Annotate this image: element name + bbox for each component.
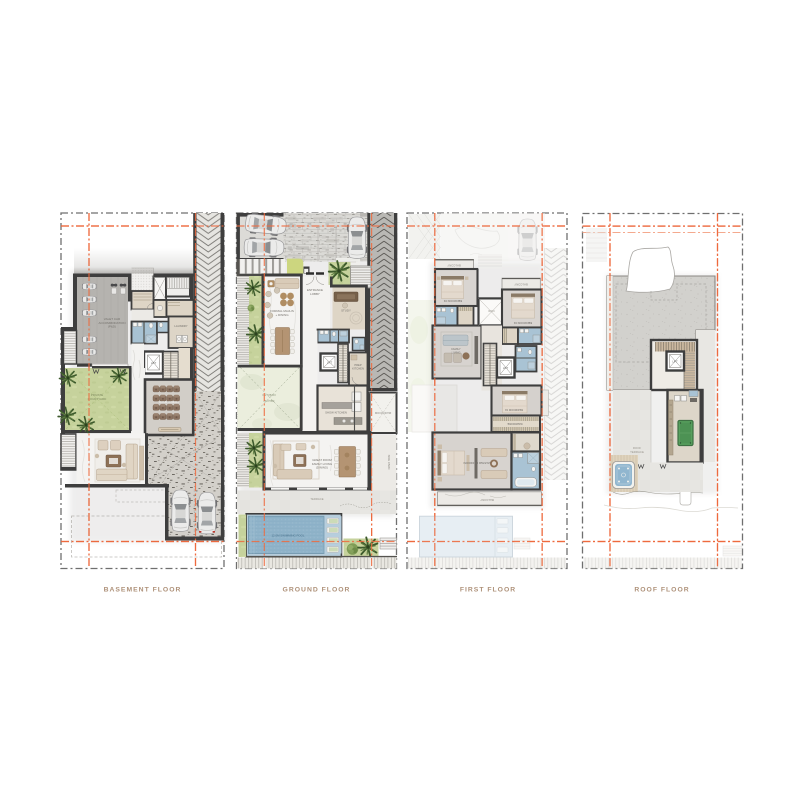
svg-text:(DINING): (DINING) [316, 466, 328, 470]
svg-text:LIFT: LIFT [327, 361, 333, 365]
svg-text:STUDY: STUDY [341, 309, 351, 313]
svg-text:SHOW KITCHEN: SHOW KITCHEN [325, 411, 347, 415]
svg-text:PREP: PREP [354, 363, 362, 367]
svg-text:COURTYARD: COURTYARD [88, 397, 108, 401]
svg-text:BALCONY: BALCONY [514, 282, 528, 286]
svg-text:BEDROOM 02: BEDROOM 02 [513, 321, 532, 325]
svg-text:MAID ROOM: MAID ROOM [374, 411, 391, 415]
svg-text:TERRACE: TERRACE [630, 450, 644, 454]
svg-text:FIRST FLOOR: FIRST FLOOR [460, 587, 516, 594]
svg-text:HOME CINEMA: HOME CINEMA [159, 400, 179, 404]
svg-text:12.0M SWIMMING POOL: 12.0M SWIMMING POOL [271, 534, 304, 538]
svg-text:(P&D): (P&D) [108, 325, 116, 329]
svg-text:GROUND FLOOR: GROUND FLOOR [283, 587, 351, 594]
svg-text:BEDROOM 04: BEDROOM 04 [505, 408, 523, 412]
svg-text:SIDE YARD: SIDE YARD [387, 455, 391, 470]
svg-text:ROOF FLOOR: ROOF FLOOR [634, 587, 689, 594]
svg-text:TERRACE: TERRACE [310, 497, 323, 501]
svg-text:VOID: VOID [488, 309, 495, 313]
svg-text:LIFT: LIFT [151, 361, 157, 365]
svg-text:+ DINING: + DINING [275, 313, 289, 317]
svg-text:LAUNDRY: LAUNDRY [174, 324, 187, 328]
svg-text:LOBBY: LOBBY [310, 292, 320, 296]
svg-text:BELOW: BELOW [263, 399, 274, 403]
svg-text:LIFT: LIFT [672, 360, 678, 364]
svg-text:LIFT: LIFT [503, 366, 509, 370]
svg-text:BALCONY: BALCONY [447, 264, 461, 268]
svg-text:BALCONY: BALCONY [480, 498, 494, 502]
svg-text:KITCHEN: KITCHEN [352, 367, 364, 371]
svg-text:BEDROOM 03: BEDROOM 03 [443, 299, 462, 303]
svg-text:WARDROBE: WARDROBE [507, 422, 522, 426]
svg-text:LIVING: LIVING [452, 350, 461, 354]
svg-text:MASTER BEDROOM: MASTER BEDROOM [463, 461, 491, 465]
svg-text:FAMILY: FAMILY [451, 347, 461, 351]
svg-text:BASEMENT FLOOR: BASEMENT FLOOR [104, 587, 182, 594]
